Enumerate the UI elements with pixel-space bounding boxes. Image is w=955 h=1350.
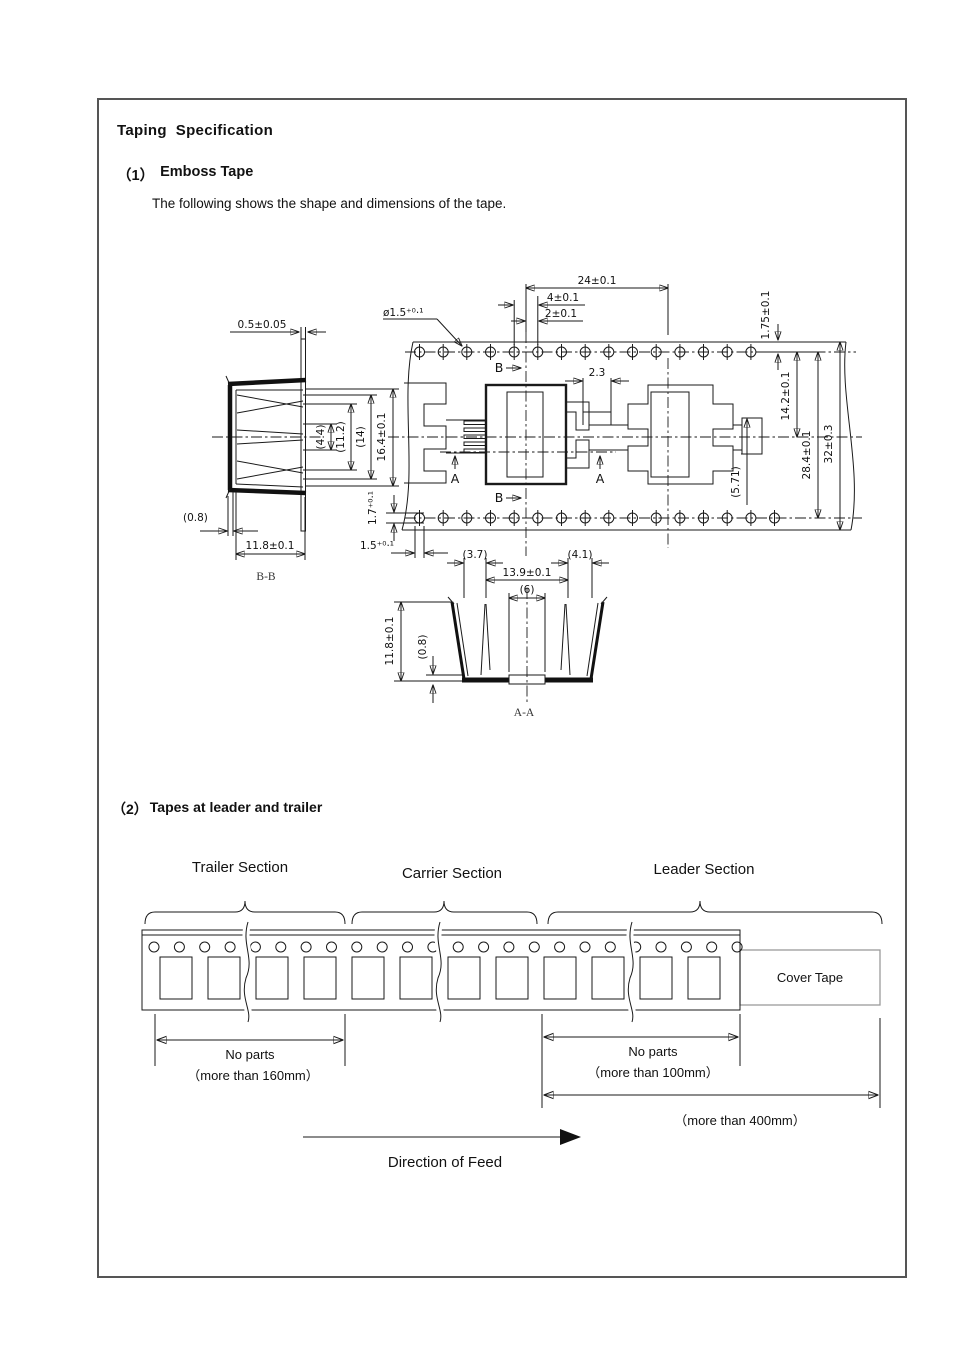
tape-band <box>388 342 862 530</box>
empty-pocket <box>160 957 192 999</box>
section1-heading: （1）Emboss Tape <box>117 164 253 185</box>
overall-length-note: （more than 400mm） <box>674 1113 806 1128</box>
dim-slot-height: 1.7⁺⁰·¹ <box>367 491 379 525</box>
dim-hole-pitch: 4±0.1 <box>547 292 579 304</box>
dim-notch-width: 2.3 <box>589 367 606 379</box>
dim-aa-bottom: (0.8) <box>417 635 429 660</box>
dim-bb-depth: 11.8±0.1 <box>246 540 295 552</box>
dim-bb-wall: (0.8) <box>183 512 208 524</box>
tape-strip <box>142 922 742 1022</box>
section-labels: Trailer Section Carrier Section Leader S… <box>192 859 755 882</box>
section-b-marker-bottom: B <box>495 490 504 505</box>
dim-hole-row-span: 28.4±0.1 <box>801 431 813 480</box>
filled-pocket <box>448 957 480 999</box>
cover-tape-box: Cover Tape <box>740 950 880 1005</box>
plan-dimensions-right: 1.75±0.1 14.2±0.1 28.4±0.1 32±0.3 (5.71) <box>730 291 840 530</box>
component-outline <box>507 392 543 477</box>
section1-title: Emboss Tape <box>160 164 253 185</box>
trailer-brace <box>145 901 345 924</box>
filled-pocket <box>496 957 528 999</box>
plan-dimensions-bottom-left: 1.7⁺⁰·¹ 1.5⁺⁰·¹ <box>360 491 448 558</box>
dim-aa-window: (6) <box>520 584 535 596</box>
break-lines <box>244 922 633 1022</box>
filled-pocket <box>352 957 384 999</box>
section2-title: Tapes at leader and trailer <box>150 799 322 819</box>
dim-aa-right: (4.1) <box>568 549 593 561</box>
trailer-length-note: （more than 160mm） <box>187 1068 319 1083</box>
section2-heading: （2）Tapes at leader and trailer <box>112 799 322 819</box>
feed-direction-label: Direction of Feed <box>388 1154 502 1171</box>
dim-hole-diameter: ø1.5⁺⁰·¹ <box>383 307 423 319</box>
view-section-aa: (3.7) (4.1) 13.9±0.1 (6) 11.8±0.1 (0.8) … <box>384 549 609 719</box>
dim-aa-cavity: 13.9±0.1 <box>503 567 552 579</box>
length-dimensions: No parts （more than 160mm） No parts （mor… <box>155 1014 880 1128</box>
leader-length-note: （more than 100mm） <box>587 1065 719 1080</box>
dim-bb-w4: 16.4±0.1 <box>376 413 388 462</box>
empty-pocket <box>544 957 576 999</box>
section1-number: （1） <box>117 164 154 185</box>
leader-brace <box>548 901 882 924</box>
dim-bb-w1: (4.4) <box>315 425 327 450</box>
section-braces <box>145 901 882 924</box>
dim-slot-width: 1.5⁺⁰·¹ <box>360 540 394 552</box>
dim-tab-depth: (5.71) <box>730 466 742 498</box>
leader-section-label: Leader Section <box>654 861 755 878</box>
view-aa-label: A-A <box>514 707 535 719</box>
dim-pocket-pitch: 24±0.1 <box>578 275 617 287</box>
leader-no-parts-note: No parts <box>628 1044 678 1059</box>
page-title: Taping Specification <box>117 122 273 139</box>
filled-pocket <box>400 957 432 999</box>
empty-pocket <box>592 957 624 999</box>
dim-aa-left: (3.7) <box>463 549 488 561</box>
dim-aa-depth: 11.8±0.1 <box>384 617 396 666</box>
trailer-no-parts-note: No parts <box>225 1047 275 1062</box>
plan-dimensions-top: 24±0.1 4±0.1 2±0.1 ø1.5⁺⁰·¹ 2.3 <box>383 275 668 412</box>
leader-trailer-diagram: Trailer Section Carrier Section Leader S… <box>95 845 905 1180</box>
empty-pocket <box>640 957 672 999</box>
section-a-marker-right: A <box>596 471 605 486</box>
dim-bb-w2: (11.2) <box>335 421 347 453</box>
empty-pocket <box>304 957 336 999</box>
pocket2-outline <box>628 385 733 484</box>
section-b-marker-top: B <box>495 360 504 375</box>
section-a-marker-left: A <box>451 471 460 486</box>
cover-tape-label: Cover Tape <box>777 970 843 985</box>
trailer-section-label: Trailer Section <box>192 859 288 876</box>
empty-pocket <box>208 957 240 999</box>
dim-hole-offset: 2±0.1 <box>545 308 577 320</box>
section2-number: （2） <box>112 799 148 819</box>
component2-outline <box>651 392 689 477</box>
empty-pocket <box>256 957 288 999</box>
dim-bb-w3: (14) <box>355 426 367 448</box>
feed-direction: Direction of Feed <box>303 1129 581 1171</box>
dim-hole-to-centerline: 14.2±0.1 <box>780 372 792 421</box>
tape-holes <box>149 942 742 952</box>
dim-tape-width: 32±0.3 <box>823 425 835 464</box>
dim-flange-thickness: 0.5±0.05 <box>238 319 287 331</box>
emboss-tape-drawing: B B A A 24±0.1 4±0.1 2±0.1 ø1.5⁺⁰·¹ <box>170 255 880 740</box>
carrier-section-label: Carrier Section <box>402 865 502 882</box>
document-page: Taping Specification （1）Emboss Tape The … <box>0 0 955 1350</box>
dim-edge-to-hole: 1.75±0.1 <box>760 291 772 340</box>
empty-pocket <box>688 957 720 999</box>
section1-description: The following shows the shape and dimens… <box>152 196 506 211</box>
carrier-brace <box>352 901 537 924</box>
feed-arrow-head <box>560 1129 581 1145</box>
view-bb-label: B-B <box>256 571 276 583</box>
